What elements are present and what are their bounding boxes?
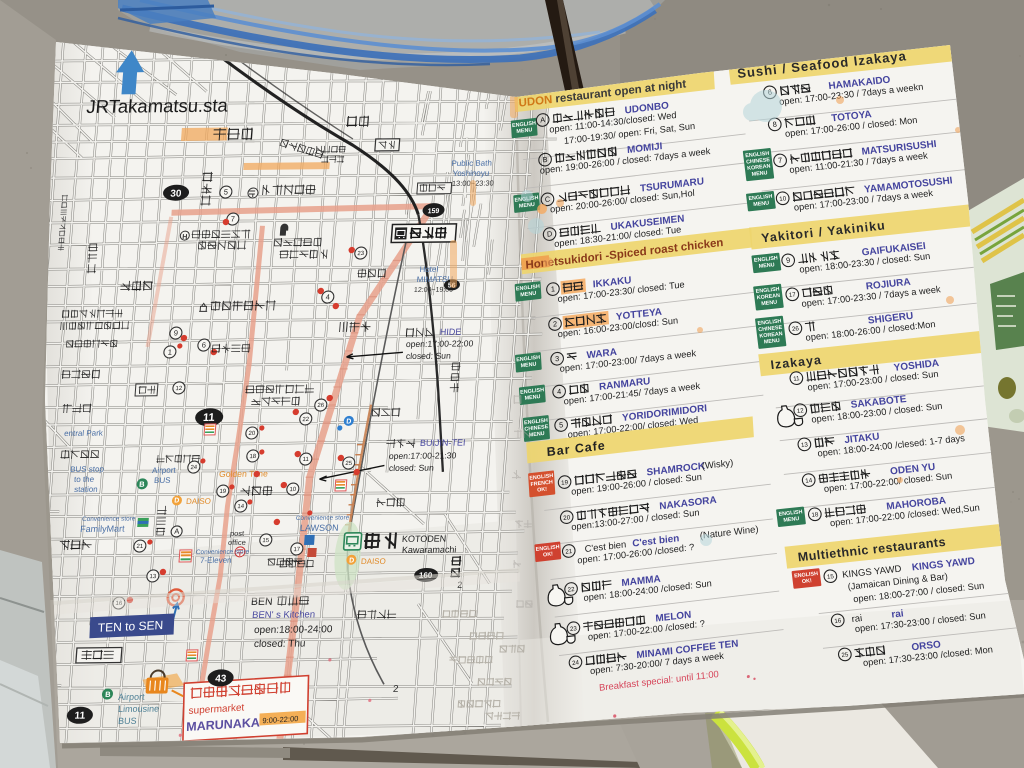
svg-text:entral Park: entral Park — [64, 429, 104, 438]
svg-text:H: H — [182, 234, 188, 241]
svg-text:OK!: OK! — [537, 486, 547, 493]
svg-text:12: 12 — [175, 386, 183, 392]
svg-text:Public Bath: Public Bath — [451, 159, 492, 168]
svg-text:11: 11 — [302, 457, 309, 463]
svg-text:6: 6 — [201, 341, 206, 350]
svg-text:A: A — [540, 115, 546, 125]
svg-text:10: 10 — [289, 487, 297, 493]
svg-text:DAISO: DAISO — [186, 497, 212, 506]
svg-text:22: 22 — [302, 417, 310, 423]
svg-text:17: 17 — [293, 547, 301, 553]
svg-text:D: D — [547, 229, 553, 239]
svg-text:4: 4 — [557, 387, 562, 396]
svg-text:rai: rai — [851, 613, 863, 625]
svg-text:24: 24 — [190, 465, 198, 471]
svg-text:KOTODEN: KOTODEN — [402, 534, 447, 544]
svg-text:26: 26 — [317, 403, 325, 409]
svg-text:5: 5 — [223, 188, 228, 197]
svg-text:Kawaramachi: Kawaramachi — [402, 544, 457, 555]
svg-text:Airport: Airport — [152, 466, 177, 475]
svg-text:21: 21 — [136, 544, 144, 550]
svg-text:office: office — [228, 538, 246, 547]
svg-text:OK!: OK! — [802, 578, 813, 585]
svg-text:LAWSON: LAWSON — [300, 523, 339, 533]
svg-text:BUIJIN-TEI: BUIJIN-TEI — [420, 438, 466, 448]
svg-text:Limousine: Limousine — [118, 704, 160, 714]
svg-text:9: 9 — [173, 329, 178, 338]
svg-text:14: 14 — [237, 504, 245, 510]
svg-text:Hotel: Hotel — [419, 265, 439, 274]
svg-text:25: 25 — [345, 461, 353, 467]
svg-text:open:18:00-24:00: open:18:00-24:00 — [254, 624, 334, 636]
svg-text:JRTakamatsu.sta: JRTakamatsu.sta — [86, 95, 230, 117]
svg-text:11: 11 — [203, 412, 216, 424]
svg-text:2: 2 — [553, 319, 558, 328]
svg-text:20: 20 — [563, 514, 571, 522]
svg-text:BUS: BUS — [118, 716, 137, 726]
svg-text:23: 23 — [357, 251, 365, 257]
svg-text:BUS stop: BUS stop — [70, 465, 105, 474]
svg-text:20: 20 — [248, 431, 256, 437]
svg-text:TEN to SEN: TEN to SEN — [98, 618, 164, 635]
svg-text:closed: Sun: closed: Sun — [406, 351, 452, 361]
svg-text:3: 3 — [555, 354, 560, 363]
svg-text:5: 5 — [559, 420, 564, 429]
svg-text:Yoshinoyu: Yoshinoyu — [452, 169, 489, 178]
svg-text:A: A — [174, 527, 180, 536]
svg-text:open:17:00-22:00: open:17:00-22:00 — [406, 338, 474, 349]
svg-text:159: 159 — [427, 208, 439, 215]
svg-text:Airport: Airport — [118, 692, 146, 702]
svg-text:4: 4 — [325, 293, 330, 302]
svg-text:DAISO: DAISO — [361, 557, 387, 566]
svg-text:19: 19 — [561, 479, 569, 487]
svg-text:22: 22 — [567, 586, 575, 594]
svg-text:43: 43 — [215, 674, 227, 685]
svg-text:11: 11 — [74, 711, 86, 722]
svg-text:30: 30 — [170, 189, 182, 200]
svg-text:closed: Thu: closed: Thu — [254, 639, 306, 650]
svg-text:open:17:00-21:30: open:17:00-21:30 — [389, 450, 457, 461]
svg-text:24: 24 — [572, 659, 580, 667]
svg-text:23: 23 — [570, 625, 578, 633]
svg-text:7-Eleven: 7-Eleven — [200, 556, 232, 565]
svg-text:post: post — [230, 529, 246, 538]
svg-text:to the: to the — [74, 475, 95, 484]
svg-text:21: 21 — [565, 548, 573, 556]
svg-text:HIDE: HIDE — [440, 327, 462, 337]
svg-text:1: 1 — [551, 284, 556, 293]
svg-text:FamilyMart: FamilyMart — [80, 524, 126, 534]
svg-text:Convenience store: Convenience store — [296, 514, 350, 522]
svg-text:D: D — [349, 557, 355, 564]
svg-text:Golden Time: Golden Time — [219, 469, 269, 479]
svg-text:B: B — [542, 155, 548, 165]
svg-text:D: D — [346, 419, 352, 426]
svg-text:Convenience store: Convenience store — [82, 515, 136, 523]
svg-text:OK!: OK! — [543, 551, 553, 558]
svg-text:15: 15 — [262, 538, 270, 544]
svg-text:19: 19 — [219, 489, 227, 495]
svg-text:station: station — [74, 485, 98, 494]
svg-text:BEN' s Kitchen: BEN' s Kitchen — [252, 609, 316, 621]
svg-text:1: 1 — [167, 348, 172, 357]
svg-text:BUS: BUS — [154, 476, 171, 485]
svg-text:13: 13 — [149, 574, 157, 580]
svg-text:7: 7 — [230, 215, 235, 224]
svg-text:D: D — [174, 497, 180, 504]
svg-text:18: 18 — [249, 454, 257, 460]
svg-text:closed: Sun: closed: Sun — [389, 463, 435, 473]
